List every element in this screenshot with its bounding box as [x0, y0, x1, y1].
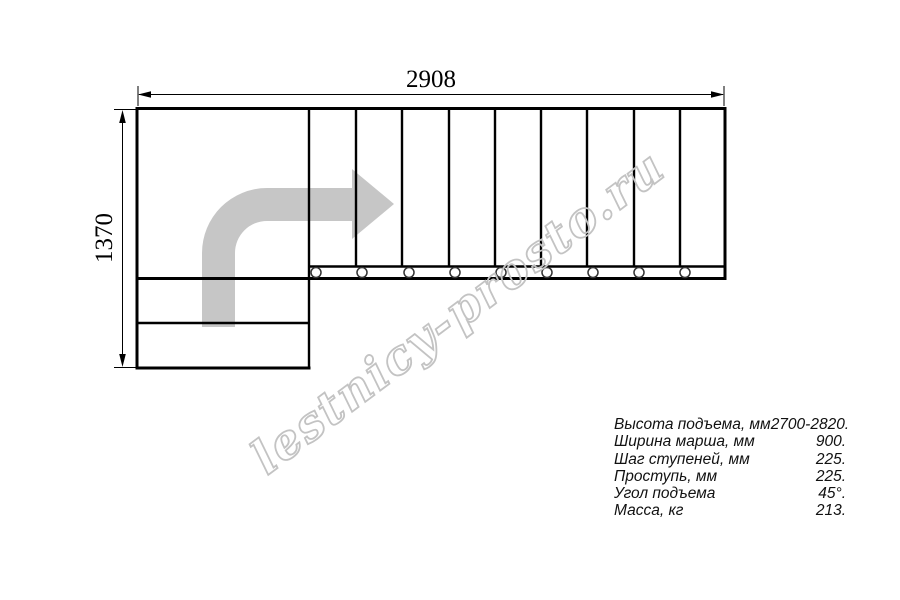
spec-row-tread-depth: Проступь, мм 225. [614, 468, 846, 485]
spec-value: 225. [816, 451, 846, 468]
spec-value: 213. [816, 502, 846, 519]
spec-label: Проступь, мм [614, 468, 717, 485]
spec-label: Высота подъема, мм [614, 416, 771, 433]
direction-arrow [202, 169, 394, 327]
spec-label: Угол подъема [614, 485, 715, 502]
spec-value: 45°. [818, 485, 846, 502]
spec-row-step-pitch: Шаг ступеней, мм 225. [614, 451, 846, 468]
spec-value: 900. [816, 433, 846, 450]
spec-label: Ширина марша, мм [614, 433, 755, 450]
width-dimension-label: 2908 [406, 66, 456, 93]
spec-row-flight-width: Ширина марша, мм 900. [614, 433, 846, 450]
spec-label: Шаг ступеней, мм [614, 451, 750, 468]
spec-row-height: Высота подъема, мм 2700-2820. [614, 416, 846, 433]
spec-row-angle: Угол подъема 45°. [614, 485, 846, 502]
spec-value: 225. [816, 468, 846, 485]
spec-row-mass: Масса, кг 213. [614, 502, 846, 519]
spec-value: 2700-2820. [771, 416, 849, 433]
height-dimension-label: 1370 [91, 213, 118, 263]
spec-table: Высота подъема, мм 2700-2820. Ширина мар… [614, 416, 846, 520]
stair-plan-page: 2908 1370 lestnicy-prosto.ru Высота подъ… [0, 0, 900, 600]
spec-label: Масса, кг [614, 502, 683, 519]
